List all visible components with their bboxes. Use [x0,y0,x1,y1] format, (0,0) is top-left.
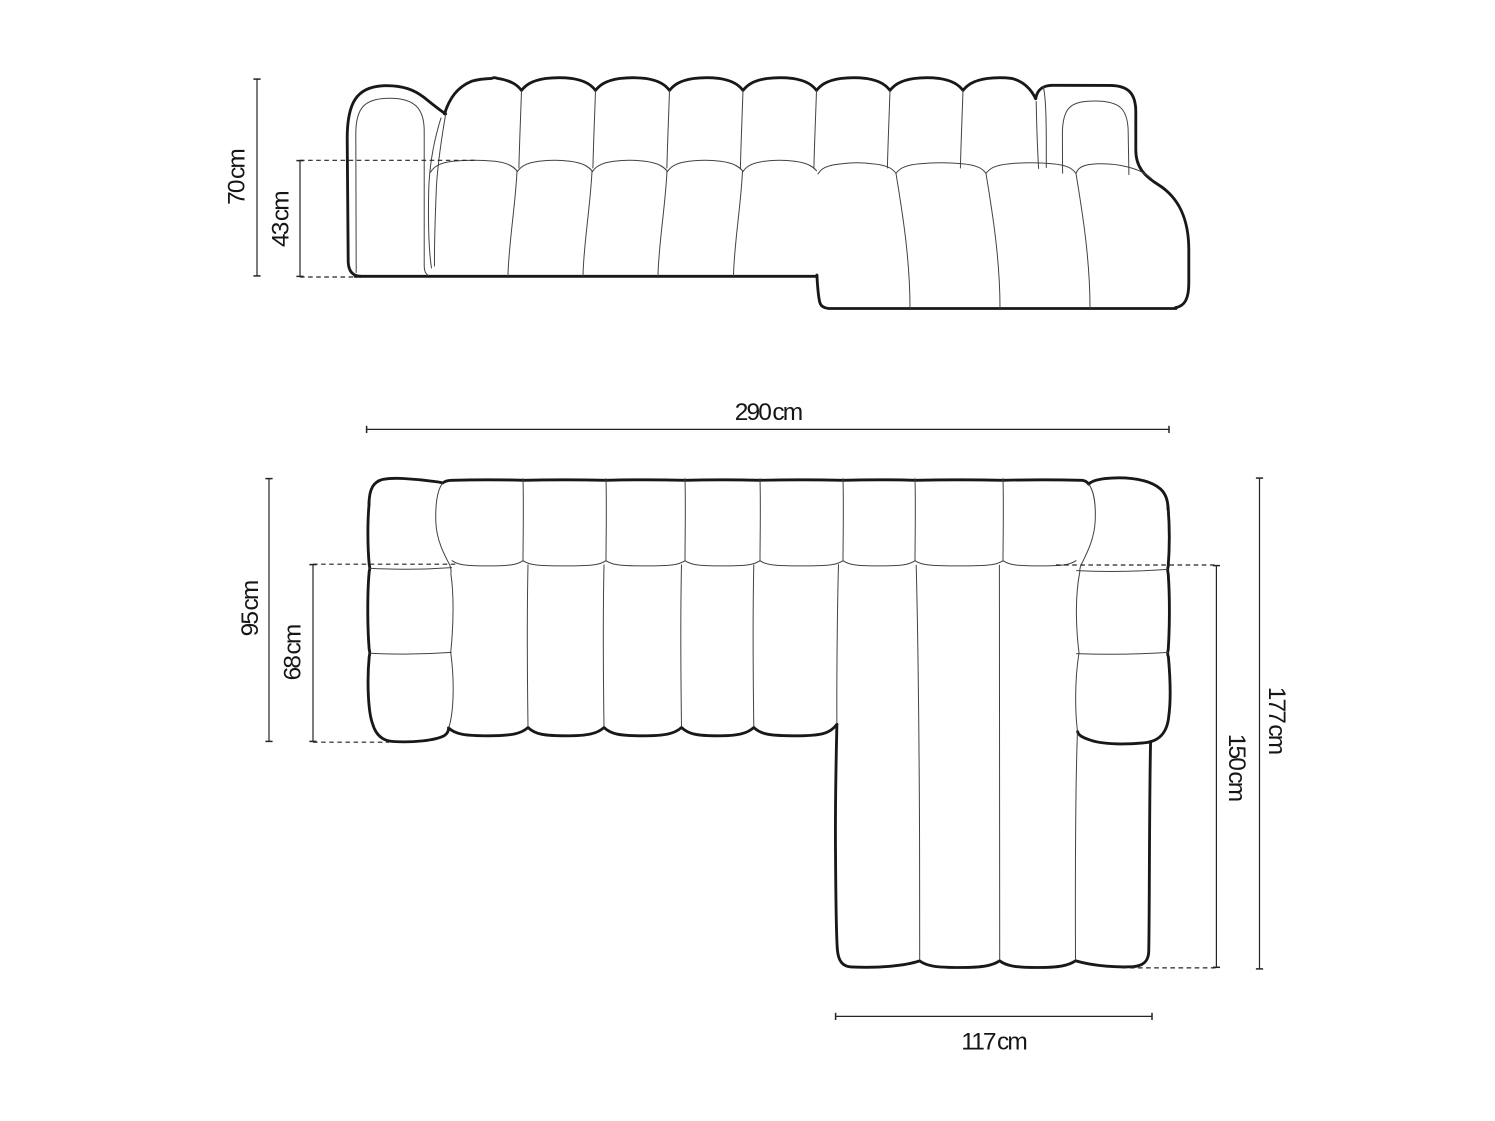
svg-text:43cm: 43cm [267,192,294,247]
svg-text:70cm: 70cm [223,150,250,205]
svg-text:95cm: 95cm [237,581,264,636]
svg-text:290cm: 290cm [735,399,802,426]
svg-text:117cm: 117cm [961,1028,1026,1055]
svg-text:150cm: 150cm [1224,734,1251,801]
svg-text:177cm: 177cm [1264,687,1291,754]
svg-text:68cm: 68cm [279,625,306,680]
